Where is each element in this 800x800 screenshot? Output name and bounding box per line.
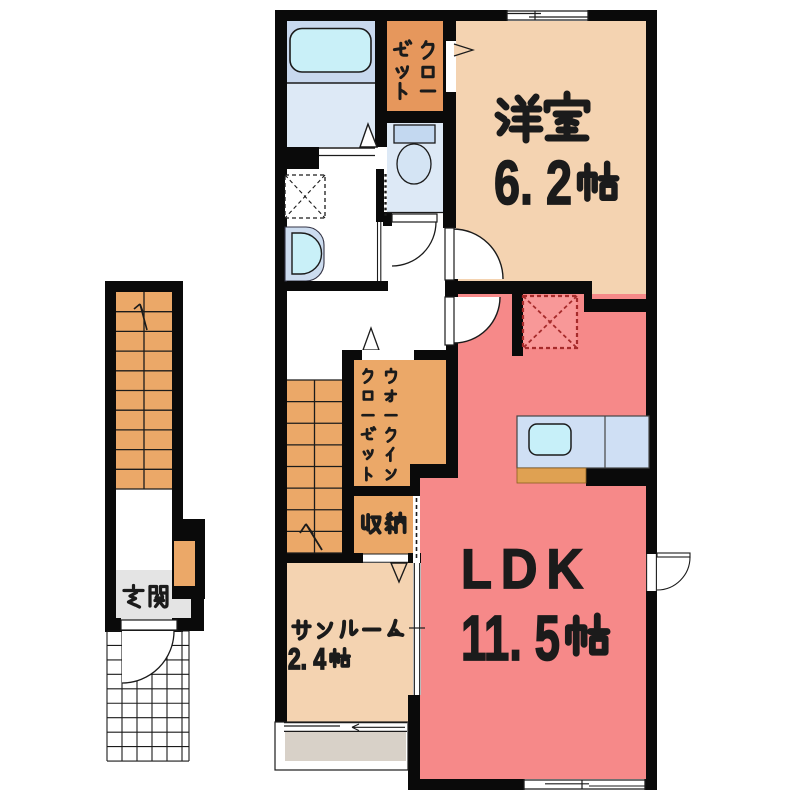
svg-text:11. 5: 11. 5 [461, 602, 560, 674]
svg-text:2. 4: 2. 4 [288, 643, 326, 676]
svg-text:6. 2: 6. 2 [494, 149, 572, 218]
svg-text:LDK: LDK [461, 537, 592, 600]
